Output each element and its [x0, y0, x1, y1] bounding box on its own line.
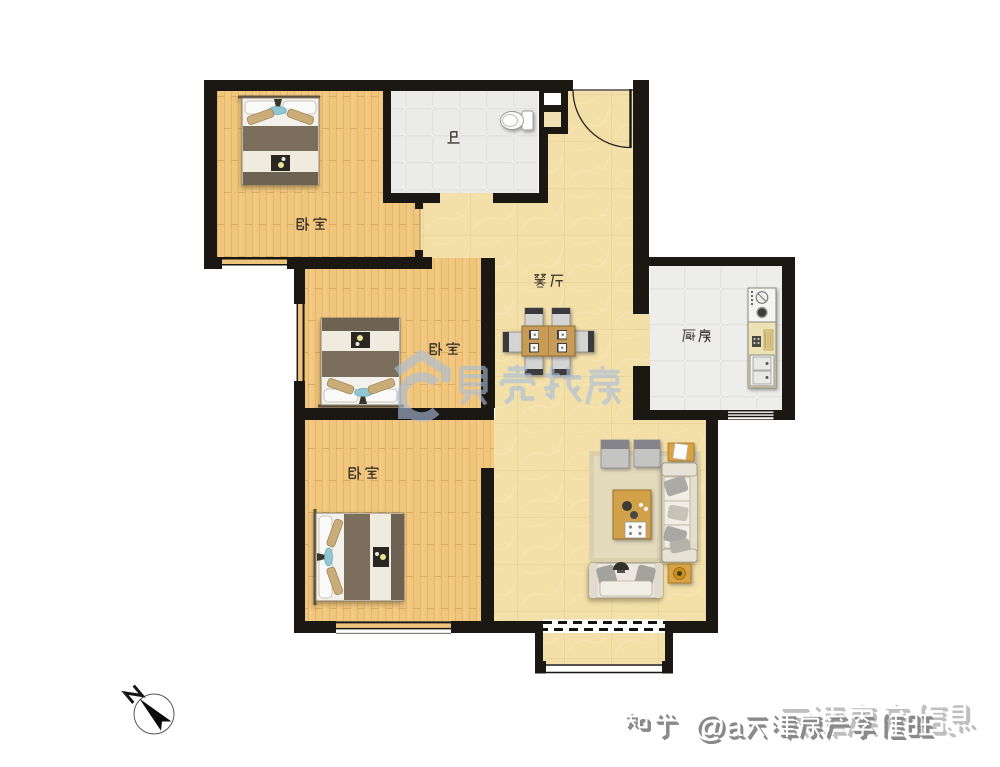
svg-text:@a: @a — [694, 708, 743, 743]
